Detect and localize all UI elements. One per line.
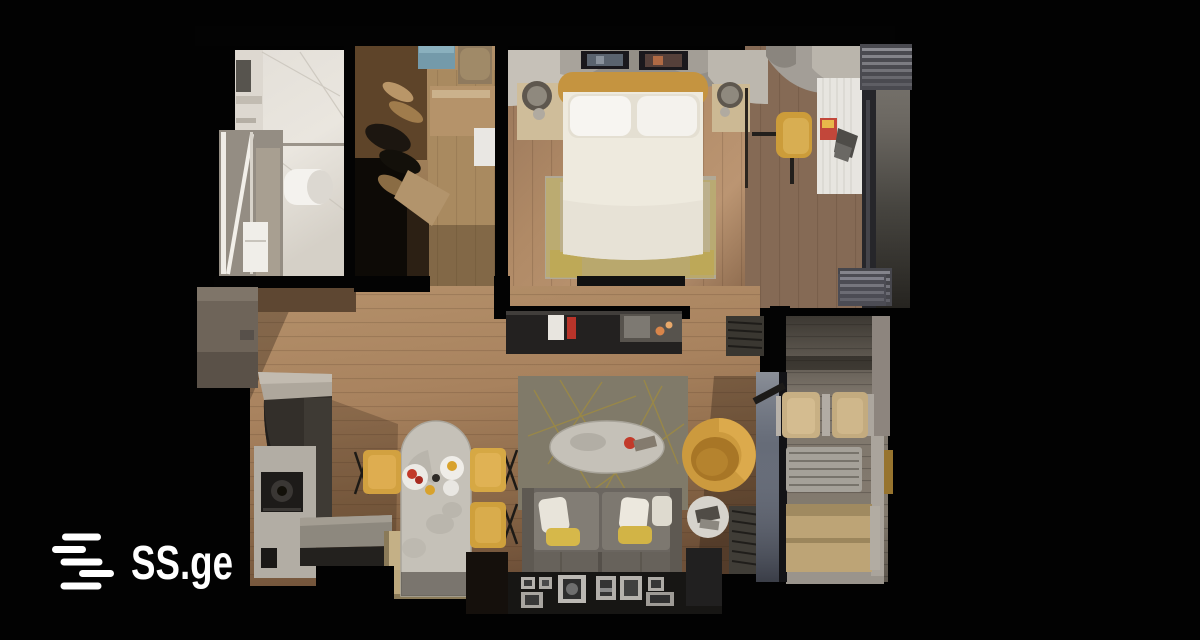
svg-text:SS.ge: SS.ge <box>131 537 233 590</box>
